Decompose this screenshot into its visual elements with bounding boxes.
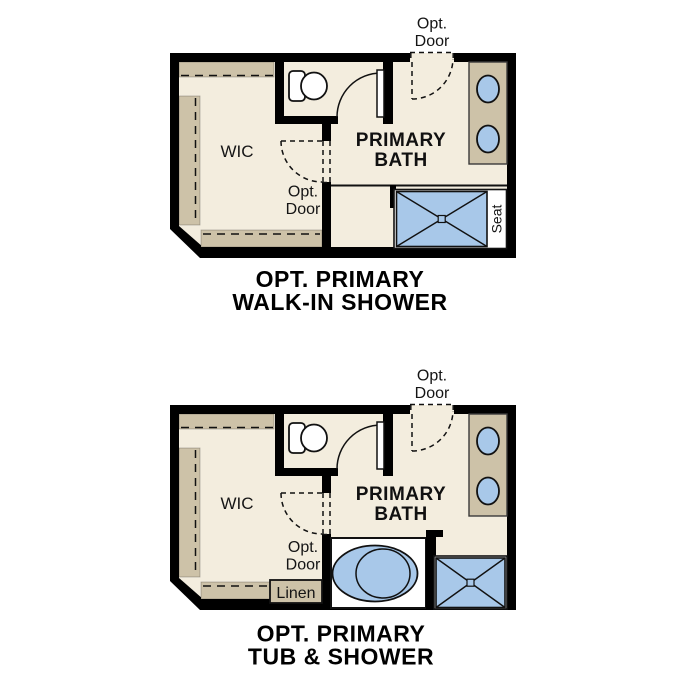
door-panel	[377, 422, 384, 469]
tub-icon	[333, 546, 418, 602]
opt-door-top-label-line1: Opt.	[417, 368, 447, 385]
wall-stub	[426, 530, 443, 537]
sink-icon	[477, 478, 499, 505]
wic-label: WIC	[220, 494, 253, 513]
sink-icon	[477, 76, 499, 103]
floor-plan-canvas: Seat WIC PRIMARY BATH Opt. Door Opt. Doo…	[0, 0, 687, 687]
wic-label: WIC	[220, 142, 253, 161]
opt-door-mid-label-line1: Opt.	[288, 184, 318, 201]
opt-door-mid-label-line2: Door	[286, 201, 321, 218]
opt-door-top-label-line1: Opt.	[417, 16, 447, 33]
opt-door-top-label-line2: Door	[415, 33, 450, 50]
primary-bath-label-line1: PRIMARY	[356, 484, 446, 505]
wic-wall-upper	[322, 124, 331, 141]
seat-label: Seat	[489, 204, 505, 233]
primary-bath-label-line1: PRIMARY	[356, 130, 446, 151]
opt-door-opening-top	[410, 53, 454, 62]
shower-drain	[438, 216, 445, 223]
toilet-room-wall-left	[275, 62, 284, 124]
wic-shelf-bottom	[201, 230, 322, 247]
opt-door-mid-label-line1: Opt.	[288, 539, 318, 556]
toilet-bowl-icon	[301, 73, 327, 100]
linen-label: Linen	[276, 585, 315, 602]
primary-bath-label-line2: BATH	[374, 504, 427, 525]
opt-door-top-label-line2: Door	[415, 385, 450, 402]
floor-plan-figure: Seat WIC PRIMARY BATH Opt. Door Opt. Doo…	[0, 0, 687, 687]
toilet-bowl-icon	[301, 425, 327, 452]
opt-door-opening-top	[410, 405, 454, 414]
plan-title-line2: TUB & SHOWER	[248, 644, 434, 670]
wic-shelf-left	[179, 96, 200, 225]
toilet-room-wall-left	[275, 414, 284, 476]
wic-shelf-bottom	[201, 582, 270, 599]
toilet-room-wall-bottom	[275, 468, 338, 476]
door-panel	[377, 70, 384, 117]
wic-wall-upper	[322, 476, 331, 493]
floorplan-walk-in-shower: Seat WIC PRIMARY BATH Opt. Door Opt. Doo…	[170, 16, 516, 259]
plan-title-line2: WALK-IN SHOWER	[232, 289, 447, 315]
primary-bath-label-line2: BATH	[374, 150, 427, 171]
sink-icon	[477, 428, 499, 455]
shower-drain	[467, 579, 474, 586]
wic-shelf-left	[179, 448, 200, 577]
wic-wall-lower	[322, 534, 331, 610]
sink-icon	[477, 126, 499, 153]
wic-wall-lower	[322, 182, 331, 258]
toilet-room-wall-bottom	[275, 116, 338, 124]
floorplan-tub-shower: Linen WIC PRIMARY BATH Opt. Door Opt. Do…	[170, 368, 516, 611]
opt-door-mid-label-line2: Door	[286, 557, 321, 574]
